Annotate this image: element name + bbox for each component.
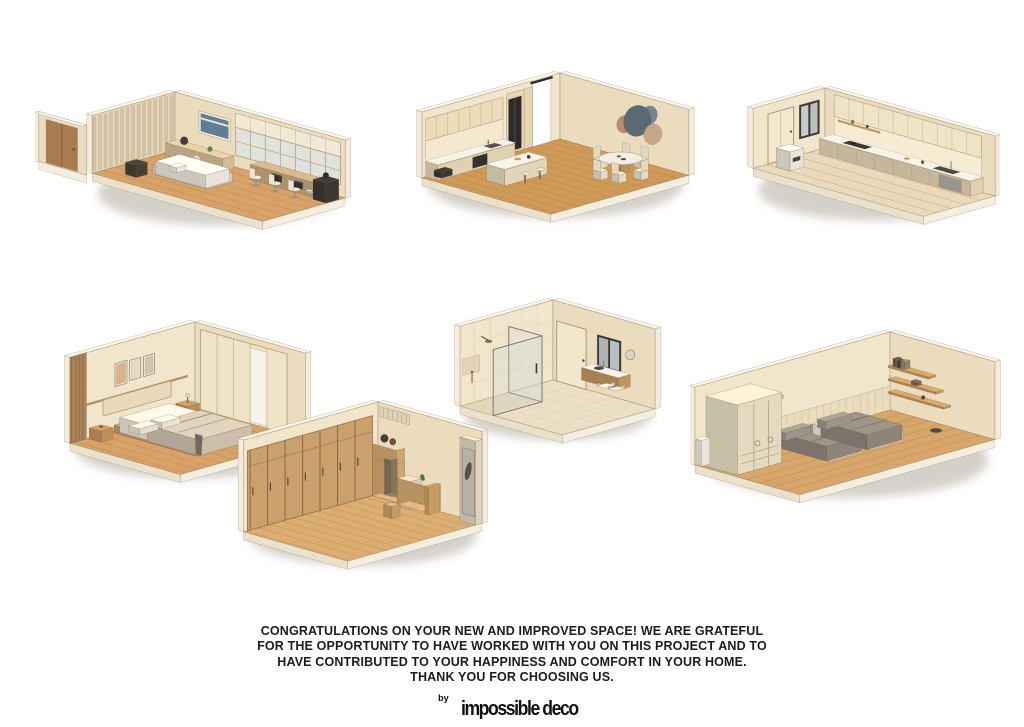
twin-bedroom-graphic [690,312,1005,512]
render-living-room-home-office [35,62,370,230]
galley-kitchen-graphic [745,75,1000,235]
message-line: HAVE CONTRIBUTED TO YOUR HAPPINESS AND C… [0,655,1024,670]
message-line: THANK YOU FOR CHOOSING US. [0,670,1024,685]
render-kitchen-dining-room [395,55,710,235]
brand-logo: by impossible deco [0,693,1024,721]
render-entry-dressing-room [230,390,490,590]
message-line: CONGRATULATIONS ON YOUR NEW AND IMPROVED… [0,624,1024,639]
thank-you-message: CONGRATULATIONS ON YOUR NEW AND IMPROVED… [0,624,1024,686]
render-galley-kitchen [745,75,1000,235]
poster-canvas: CONGRATULATIONS ON YOUR NEW AND IMPROVED… [0,0,1024,727]
brand-prefix: by [438,693,449,703]
living-room-home-office-graphic [35,62,370,230]
brand-name: impossible deco [461,698,578,721]
render-twin-bedroom [690,312,1005,512]
kitchen-dining-room-graphic [395,55,710,235]
message-line: FOR THE OPPORTUNITY TO HAVE WORKED WITH … [0,639,1024,654]
entry-dressing-room-graphic [230,390,490,590]
